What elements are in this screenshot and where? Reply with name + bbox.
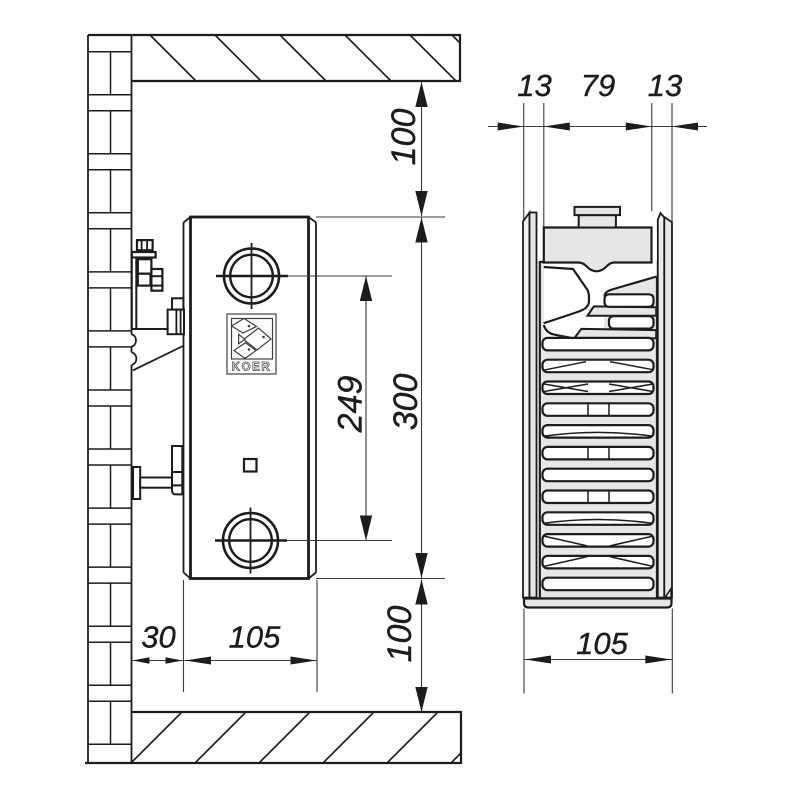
svg-text:13: 13 xyxy=(648,68,682,103)
svg-text:105: 105 xyxy=(229,620,281,655)
svg-text:KOER: KOER xyxy=(232,362,272,374)
svg-text:79: 79 xyxy=(581,68,615,103)
svg-text:13: 13 xyxy=(517,68,551,103)
svg-text:105: 105 xyxy=(576,626,628,661)
svg-text:300: 300 xyxy=(387,374,425,431)
svg-text:100: 100 xyxy=(381,606,419,663)
svg-text:30: 30 xyxy=(141,620,175,655)
svg-text:249: 249 xyxy=(332,376,370,434)
svg-text:100: 100 xyxy=(385,109,423,166)
